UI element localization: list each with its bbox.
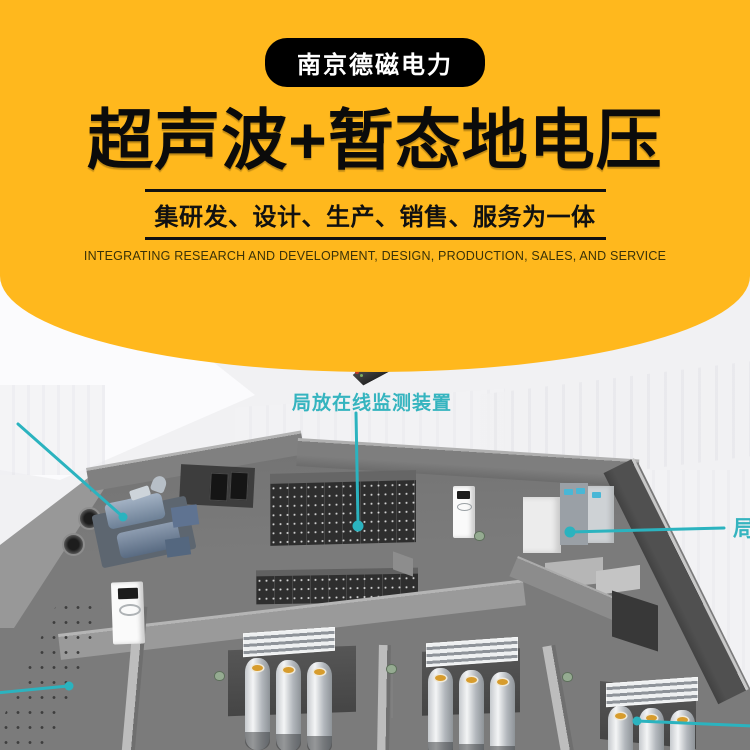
- cabinet-screen: [576, 488, 585, 494]
- transformer-cylinder: [639, 708, 664, 750]
- cabinet-screen: [564, 489, 573, 495]
- page-title: 超声波+暂态地电压: [0, 103, 750, 179]
- transformer-frame: [243, 627, 335, 657]
- cabinet-screen: [592, 492, 601, 498]
- transformer-cylinder: [490, 672, 515, 750]
- camera-pole: [391, 672, 393, 718]
- ac-screen: [118, 588, 138, 600]
- promo-image: 局放在线监测装置 局 南京德磁电力 超声波+暂态地电压 集研发、设计、生产、销售…: [0, 0, 750, 750]
- transformer-group: [243, 630, 335, 750]
- generator-cabinet: [171, 504, 200, 527]
- dome-camera: [386, 664, 397, 674]
- dome-camera: [562, 672, 573, 682]
- wall-fan: [62, 533, 85, 556]
- transformer-cylinder: [608, 706, 633, 750]
- transformer-frame: [426, 637, 518, 667]
- brand-badge-label: 南京德磁电力: [297, 52, 453, 79]
- transformer-group: [426, 640, 518, 750]
- double-door-left: [209, 473, 228, 502]
- transformer-cylinder: [276, 660, 301, 750]
- switchgear-row: [270, 480, 416, 546]
- pd-monitor-label: 局放在线监测装置: [0, 388, 744, 415]
- dome-camera: [214, 671, 225, 681]
- transformer-cylinder: [670, 710, 695, 750]
- right-callout-label-partial: 局: [733, 511, 750, 543]
- camera-green-led: [360, 374, 363, 377]
- transformer-cylinder: [459, 670, 484, 750]
- dome-camera: [474, 531, 485, 541]
- yellow-banner: 南京德磁电力 超声波+暂态地电压 集研发、设计、生产、销售、服务为一体 INTE…: [0, 0, 750, 372]
- transformer-group: [606, 680, 698, 750]
- transformer-cylinder: [245, 658, 270, 750]
- subtitle: 集研发、设计、生产、销售、服务为一体: [145, 189, 606, 240]
- room-divider-wall: [377, 645, 391, 750]
- subtitle-english: INTEGRATING RESEARCH AND DEVELOPMENT, DE…: [0, 249, 750, 263]
- transformer-cylinder: [428, 668, 453, 750]
- cabinet-vent: [457, 503, 472, 511]
- brand-badge: 南京德磁电力: [265, 38, 485, 87]
- generator-cabinet: [165, 536, 191, 557]
- transformer-cylinder: [307, 662, 332, 750]
- double-door-right: [229, 472, 248, 501]
- transformer-frame: [606, 677, 698, 707]
- switchgear-cabinet: [523, 497, 561, 553]
- cabinet-screen: [457, 491, 470, 499]
